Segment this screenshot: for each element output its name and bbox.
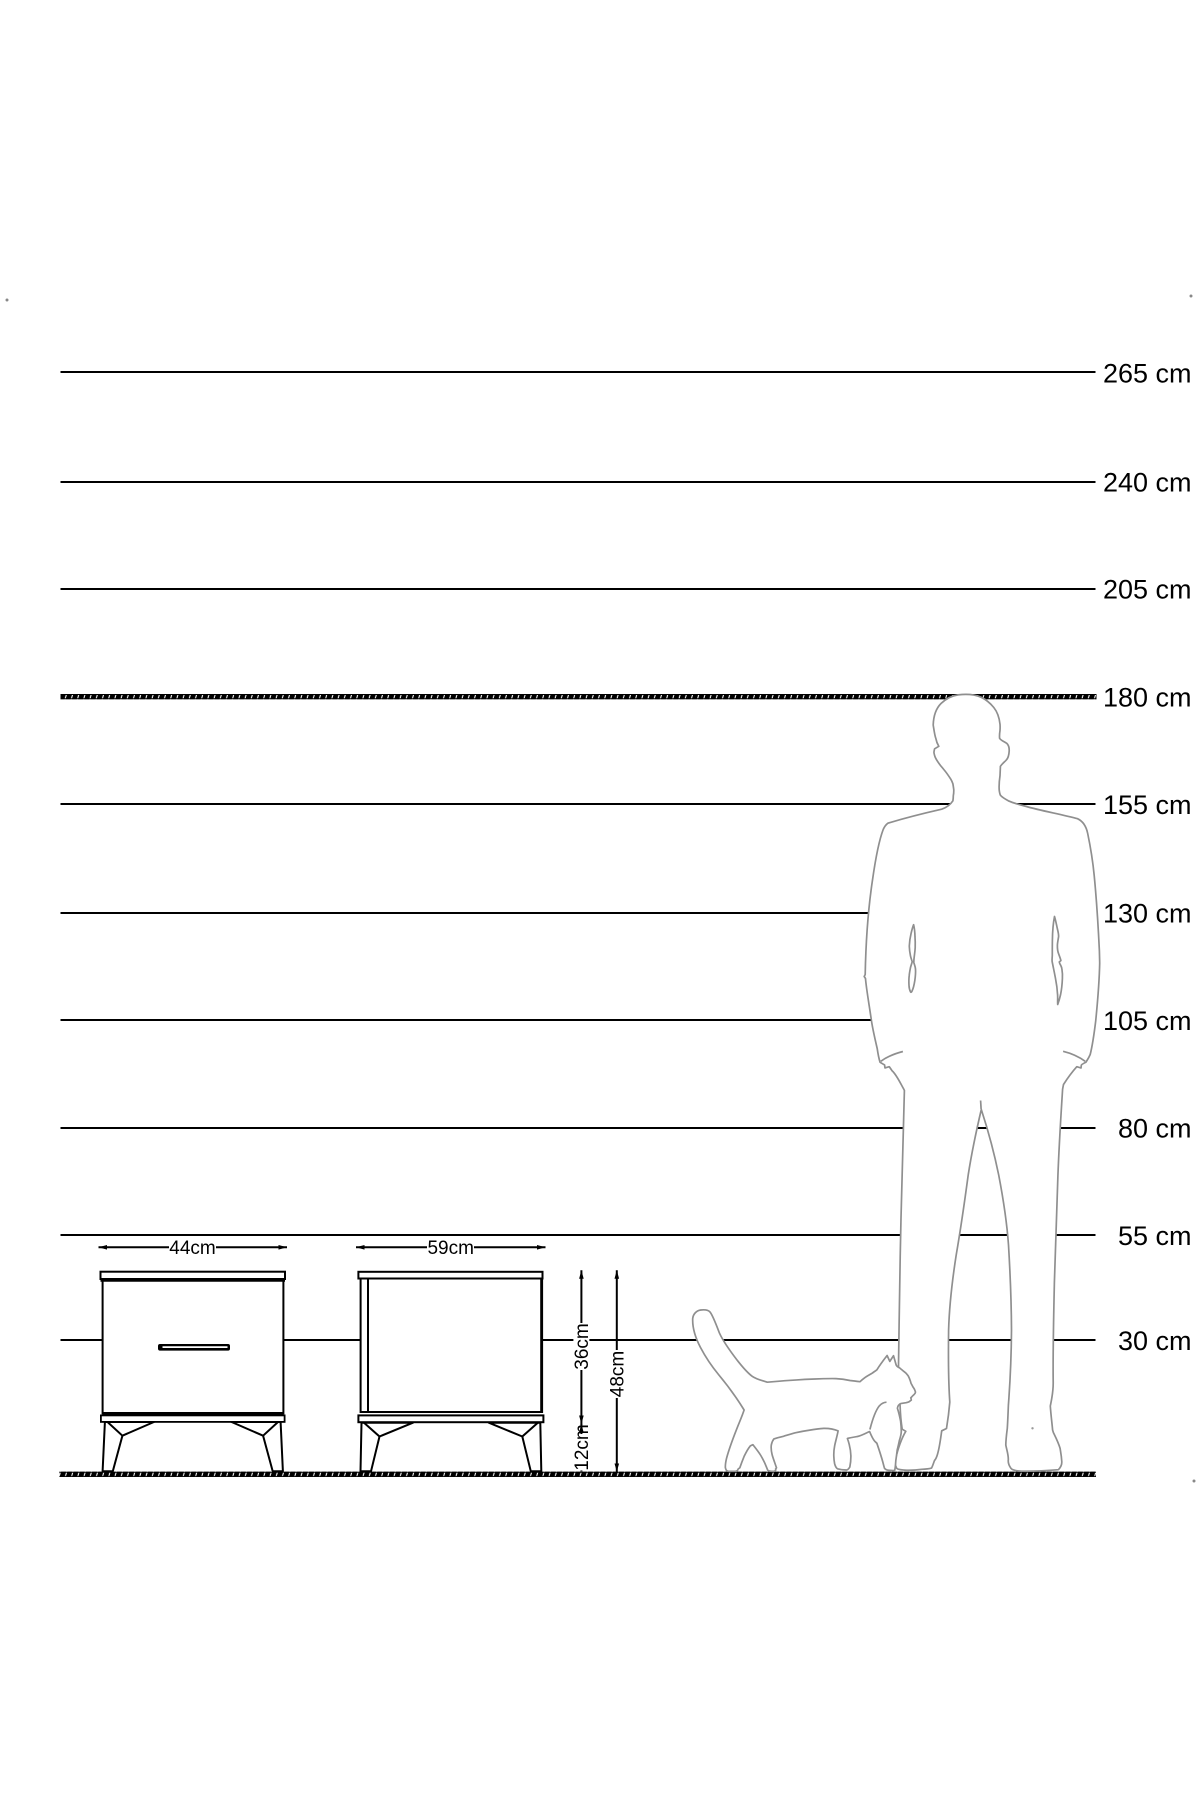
svg-text:80 cm: 80 cm xyxy=(1118,1113,1192,1143)
svg-text:12cm: 12cm xyxy=(572,1424,593,1470)
svg-text:180 cm: 180 cm xyxy=(1103,682,1192,712)
svg-text:30 cm: 30 cm xyxy=(1118,1326,1192,1356)
svg-text:48cm: 48cm xyxy=(607,1351,628,1397)
svg-text:240 cm: 240 cm xyxy=(1103,468,1192,498)
svg-text:130 cm: 130 cm xyxy=(1103,899,1192,929)
svg-text:59cm: 59cm xyxy=(427,1238,473,1259)
svg-text:36cm: 36cm xyxy=(572,1323,593,1369)
svg-text:55 cm: 55 cm xyxy=(1118,1221,1192,1251)
svg-text:44cm: 44cm xyxy=(169,1238,215,1259)
svg-text:205 cm: 205 cm xyxy=(1103,575,1192,605)
svg-text:265 cm: 265 cm xyxy=(1103,358,1192,388)
svg-text:155 cm: 155 cm xyxy=(1103,790,1192,820)
svg-text:105 cm: 105 cm xyxy=(1103,1006,1192,1036)
